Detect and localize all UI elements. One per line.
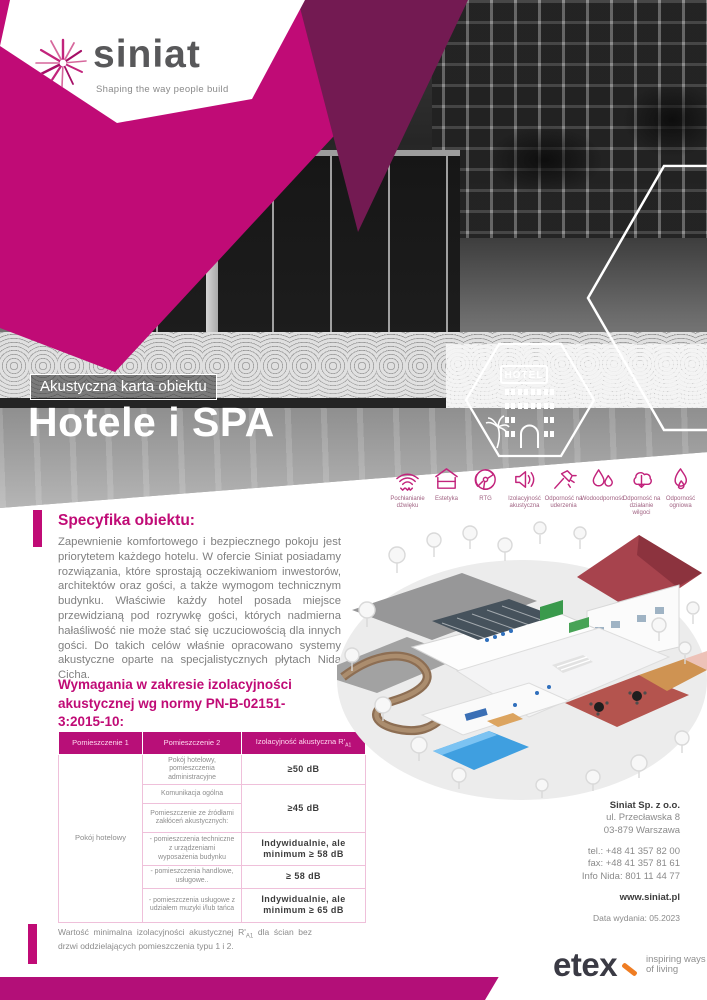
room2-cell: - pomieszczenia techniczne z urządzeniam…	[143, 833, 242, 866]
moisture-resistance-icon	[628, 466, 655, 493]
feature-label: Estetyka	[435, 496, 458, 503]
specifics-body: Zapewnienie komfortowego i bezpiecznego …	[58, 535, 341, 683]
feature-moisture-resistance: Odporność na działanie wilgoci	[622, 466, 661, 518]
feature-label: Pochłanianie dźwięku	[388, 496, 427, 510]
contact-block: Siniat Sp. z o.o. ul. Przecławska 8 03-8…	[480, 800, 680, 924]
hero-badge: Akustyczna karta obiektu	[30, 374, 217, 400]
company-name: Siniat Sp. z o.o.	[480, 800, 680, 812]
page-title: Hotele i SPA	[28, 399, 275, 446]
brochure-page: HOTEL	[0, 0, 707, 1000]
fax-line: fax: +48 41 357 81 61	[480, 858, 680, 870]
website-link[interactable]: www.siniat.pl	[480, 892, 680, 904]
section-accent-bar	[33, 510, 42, 547]
col-header-room2: Pomieszczenie 2	[143, 732, 242, 755]
etex-tagline: inspiring ways of living	[646, 955, 706, 976]
aesthetics-icon	[433, 466, 460, 493]
etex-logo: etex	[553, 946, 617, 984]
requirements-heading: Wymagania w zakresie izolacyjności akust…	[58, 676, 312, 732]
room2-cell: Pokój hotelowy, pomieszczenia administra…	[143, 754, 242, 785]
room2-cell: - pomieszczenia usługowe z udziałem muzy…	[143, 888, 242, 922]
room1-cell: Pokój hotelowy	[59, 754, 143, 922]
fire-resistance-icon	[667, 466, 694, 493]
siniat-logo: siniat	[93, 33, 201, 77]
acoustic-requirements-table: Pomieszczenie 1 Pomieszczenie 2 Izolacyj…	[58, 731, 366, 923]
address-line: ul. Przecławska 8	[480, 812, 680, 824]
issue-date: Data wydania: 05.2023	[480, 913, 680, 924]
feature-water-resistance: Wodoodporność	[583, 466, 622, 518]
feature-label: Odporność ogniowa	[661, 496, 700, 510]
table-row: Pokój hotelowy Pokój hotelowy, pomieszcz…	[59, 754, 366, 785]
address-line: 03-879 Warszawa	[480, 825, 680, 837]
feature-fire-resistance: Odporność ogniowa	[661, 466, 700, 518]
patio-chairs-photo	[446, 344, 707, 418]
footnote-accent-bar	[28, 924, 37, 964]
feature-impact-resistance: Odporność na uderzenia	[544, 466, 583, 518]
col-header-room1: Pomieszczenie 1	[59, 732, 143, 755]
room2-cell: Pomieszczenie ze źródłami zakłóceń akust…	[143, 804, 242, 833]
room2-cell: Komunikacja ogólna	[143, 785, 242, 804]
feature-sound-absorption: Pochłanianie dźwięku	[388, 466, 427, 518]
feature-aesthetics: Estetyka	[427, 466, 466, 518]
feature-xray: RTG	[466, 466, 505, 518]
value-cell: ≥ 58 dB	[242, 866, 366, 888]
brand-tagline: Shaping the way people build	[96, 84, 229, 95]
feature-label: Wodoodporność	[581, 496, 625, 503]
specifics-heading: Specyfika obiektu:	[58, 512, 195, 530]
phone-line: tel.: +48 41 357 82 00	[480, 846, 680, 858]
feature-icons-row: Pochłanianie dźwięku Estetyka RTG Izolac…	[388, 466, 700, 518]
sound-absorption-icon	[394, 466, 421, 493]
xray-icon	[472, 466, 499, 493]
feature-label: RTG	[479, 496, 492, 503]
etex-tagline-line: of living	[646, 965, 706, 975]
feature-acoustic-insulation: Izolacyjność akustyczna	[505, 466, 544, 518]
acoustic-insulation-icon	[511, 466, 538, 493]
table-footnote: Wartość minimalna izolacyjności akustycz…	[58, 927, 312, 953]
feature-label: Odporność na uderzenia	[544, 496, 583, 510]
building-illustration	[337, 515, 707, 800]
feature-label: Izolacyjność akustyczna	[505, 496, 544, 510]
impact-resistance-icon	[550, 466, 577, 493]
room2-cell: - pomieszczenia handlowe, usługowe..	[143, 866, 242, 888]
value-cell: Indywidualnie, ale minimum ≥ 65 dB	[242, 888, 366, 922]
water-resistance-icon	[589, 466, 616, 493]
value-cell: Indywidualnie, ale minimum ≥ 58 dB	[242, 833, 366, 866]
info-line: Info Nida: 801 11 44 77	[480, 871, 680, 883]
